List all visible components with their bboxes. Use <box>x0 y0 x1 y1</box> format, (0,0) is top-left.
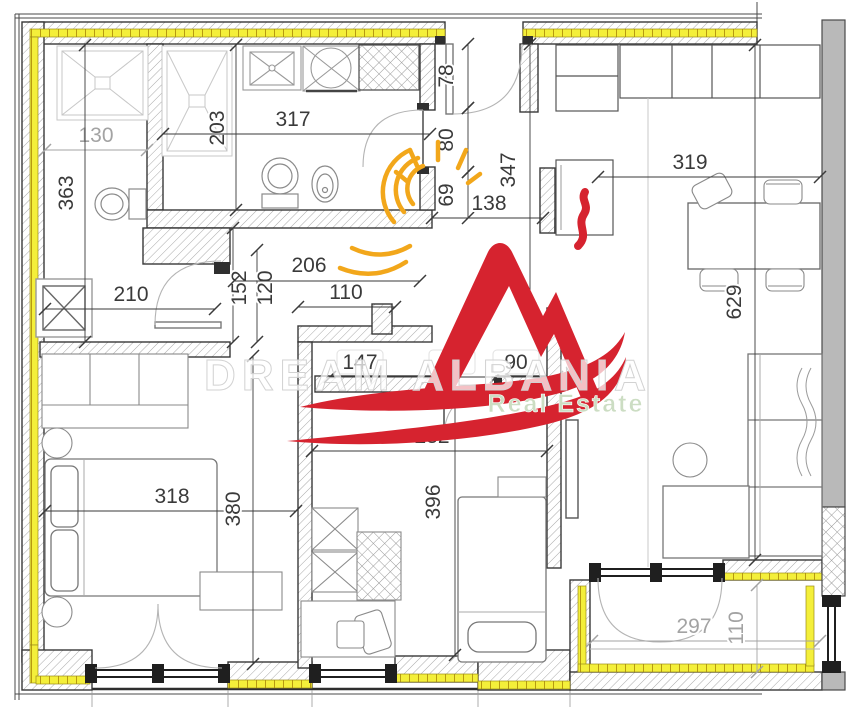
bedside-shelf-icon <box>498 477 546 497</box>
dresser-icon <box>200 572 282 610</box>
double-bed-icon <box>45 459 217 596</box>
wardrobe-icon <box>42 354 188 428</box>
shaft-hatch <box>357 532 401 600</box>
nightstand-icon <box>42 428 72 458</box>
ensuite-door-swing <box>155 261 221 328</box>
sink-icon <box>243 46 301 90</box>
dim-d210-label: 210 <box>113 283 148 306</box>
toilet-icon <box>262 158 298 208</box>
dim-d206-label: 206 <box>291 254 326 277</box>
dim-d78: 78 <box>435 38 474 114</box>
single-bed-icon <box>458 497 546 662</box>
dim-d69-label: 69 <box>435 183 458 206</box>
logo-sun-icon <box>340 142 480 274</box>
bedroom1-french-door-swing <box>95 604 222 668</box>
dim-d317-label: 317 <box>275 108 310 131</box>
dim-d130-label: 130 <box>78 124 113 147</box>
floor-plan-page: 1303632033172101521202061107880691383473… <box>0 0 858 710</box>
shaft-hatch <box>359 45 419 90</box>
dim-d120: 120 <box>251 244 277 348</box>
dim-d363-label: 363 <box>55 175 78 210</box>
tv-icon <box>566 420 578 518</box>
shower-tray-icon <box>57 46 148 120</box>
watermark-subtitle: Real Estate <box>488 390 645 418</box>
balcony-side-window-frame <box>823 596 840 672</box>
wardrobe-x-icon <box>312 508 358 592</box>
bedroom2-window-frame <box>310 665 396 682</box>
dim-d110b-label: 110 <box>725 611 748 644</box>
dim-d80: 80 <box>435 102 474 178</box>
dim-d120-label: 120 <box>254 270 277 305</box>
dim-d297-label: 297 <box>676 615 711 638</box>
dim-d319-label: 319 <box>672 151 707 174</box>
bidet-icon <box>312 166 338 202</box>
toilet-icon <box>95 188 146 220</box>
dim-d110b: 110 <box>725 579 763 678</box>
nightstand-icon <box>42 597 72 627</box>
corner-shower-icon <box>36 279 92 337</box>
floor-plan: 1303632033172101521202061107880691383473… <box>0 0 858 710</box>
stool-icon <box>337 621 364 648</box>
dim-d318-label: 318 <box>154 485 189 508</box>
pouf-icon <box>673 443 707 477</box>
dim-d203-label: 203 <box>206 110 229 145</box>
dim-d138-label: 138 <box>471 192 506 215</box>
dim-d629-label: 629 <box>723 284 746 319</box>
dim-d130: 130 <box>39 124 153 156</box>
dim-d297: 297 <box>586 615 826 647</box>
dim-d69: 69 <box>435 166 474 224</box>
living-balcony-door-frame <box>590 564 724 581</box>
dim-d380-label: 380 <box>222 491 245 526</box>
dim-d347-label: 347 <box>497 152 520 187</box>
dim-d78-label: 78 <box>435 64 458 87</box>
dim-d110-label: 110 <box>329 281 362 304</box>
washing-machine-icon <box>303 46 360 91</box>
concrete-wall <box>822 20 845 690</box>
dining-table-icon <box>688 203 820 269</box>
dim-d396-label: 396 <box>422 484 445 519</box>
